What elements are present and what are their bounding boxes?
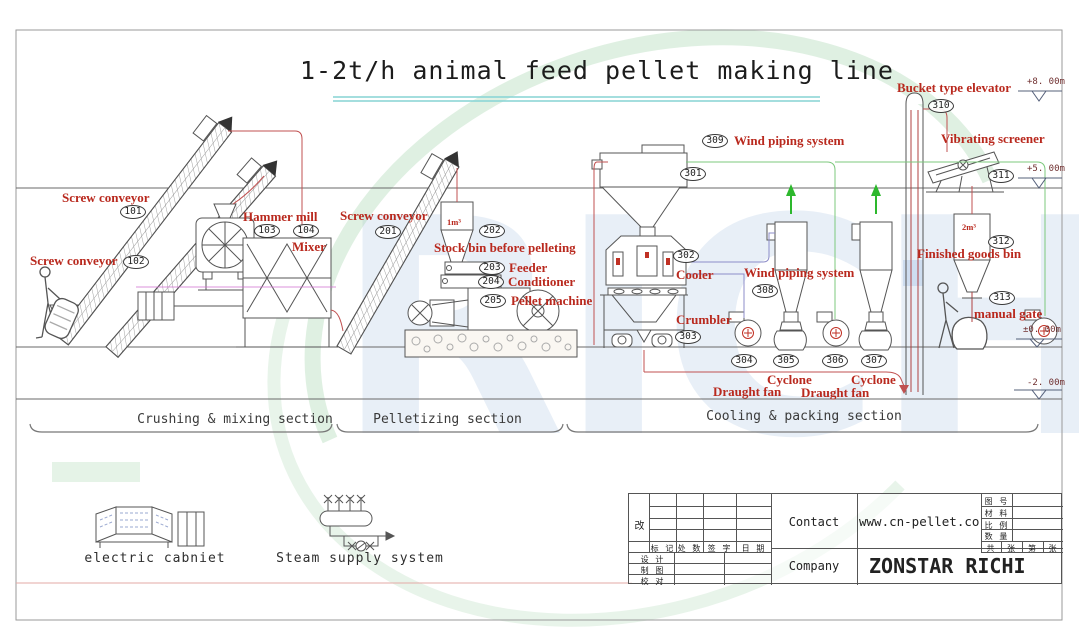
titleblock-company-label: Company	[771, 559, 857, 573]
titleblock-sheet-sheets: 张	[1001, 543, 1022, 554]
badge-309: 309	[702, 134, 728, 148]
titleblock-col-signature: 签 字	[703, 543, 736, 554]
badge-303: 303	[675, 330, 701, 344]
grid-line	[649, 518, 771, 519]
label-wind-piping-309: Wind piping system	[734, 133, 844, 149]
label-manual-gate: manual gate	[974, 306, 1042, 322]
badge-308: 308	[752, 284, 778, 298]
badge-313: 313	[989, 291, 1015, 305]
grid-line	[857, 494, 858, 585]
label-finished-bin-capacity: 2m³	[962, 222, 976, 232]
label-bucket-elevator: Bucket type elevator	[897, 80, 1011, 96]
grid-line	[649, 529, 771, 530]
badge-205: 205	[480, 294, 506, 308]
titleblock-col-date: 日 期	[736, 543, 771, 554]
titleblock-col-mark: 标 记	[649, 543, 676, 554]
section-crushing-mixing: Crushing & mixing section	[120, 412, 350, 427]
titleblock-col-count: 处 数	[676, 543, 703, 554]
badge-302: 302	[673, 249, 699, 263]
titleblock-spec-drawingno: 图 号	[981, 496, 1012, 507]
label-steam-system: Steam supply system	[276, 551, 444, 566]
section-cooling-packing: Cooling & packing section	[690, 409, 918, 424]
titleblock-company-value: ZONSTAR RICHI	[869, 554, 1063, 578]
label-draught-fan-1: Draught fan	[713, 384, 781, 400]
label-draught-fan-2: Draught fan	[801, 385, 869, 401]
label-screw-conveyor-102: Screw conveyor	[30, 253, 117, 269]
label-crumbler: Crumbler	[676, 312, 732, 328]
badge-201: 201	[375, 225, 401, 239]
label-stock-bin: Stock bin before pelleting	[434, 240, 576, 256]
titleblock-spec-scale: 比 例	[981, 520, 1012, 531]
titleblock-row-check: 校 对	[631, 576, 674, 587]
badge-104: 104	[293, 224, 319, 238]
label-hammer-mill: Hammer mill	[243, 209, 318, 225]
titleblock-spec-material: 材 料	[981, 508, 1012, 519]
grid-line	[649, 506, 771, 507]
badge-310: 310	[928, 99, 954, 113]
badge-307: 307	[861, 354, 887, 368]
titleblock-spec-quantity: 数 量	[981, 531, 1012, 542]
titleblock-sheet-no: 第	[1022, 543, 1043, 554]
label-conditioner: Conditioner	[508, 274, 575, 290]
elevation-zero: ±0. 00m	[1023, 325, 1061, 335]
badge-305: 305	[773, 354, 799, 368]
badge-311: 311	[988, 169, 1014, 183]
label-electric-cabinet: electric cabniet	[84, 551, 226, 566]
badge-203: 203	[479, 261, 505, 275]
badge-102: 102	[123, 255, 149, 269]
grid-line	[724, 552, 725, 585]
elevation-minus2: -2. 00m	[1027, 378, 1065, 388]
label-wind-piping-308: Wind piping system	[744, 265, 854, 281]
titleblock-contact-value: www.cn-pellet.com	[859, 514, 979, 529]
label-cooler: Cooler	[676, 267, 714, 283]
titleblock-row-design: 设 计	[631, 554, 674, 565]
title-block: 改 标 记 处 数 签 字 日 期 设 计 制 图 校 对 Contact ww…	[628, 493, 1062, 584]
label-screw-conveyor-101: Screw conveyor	[62, 190, 149, 206]
diagram-canvas: RICHI	[0, 0, 1079, 634]
elevation-plus5: +5. 00m	[1027, 164, 1065, 174]
titleblock-sheet-page: 张	[1043, 543, 1063, 554]
section-pelletizing: Pelletizing section	[350, 412, 545, 427]
grid-line	[674, 552, 675, 585]
label-mixer: Mixer	[292, 239, 326, 255]
badge-301: 301	[680, 167, 706, 181]
titleblock-contact-label: Contact	[771, 515, 857, 529]
elevation-plus8: +8. 00m	[1027, 77, 1065, 87]
label-finished-goods-bin: Finished goods bin	[917, 246, 1021, 262]
label-screw-conveyor-201: Screw conveyor	[340, 208, 427, 224]
badge-202: 202	[479, 224, 505, 238]
titleblock-row-draft: 制 图	[631, 565, 674, 576]
badge-306: 306	[822, 354, 848, 368]
badge-304: 304	[731, 354, 757, 368]
badge-101: 101	[120, 205, 146, 219]
grid-line	[629, 541, 771, 542]
label-pellet-machine: Pellet machine	[511, 293, 592, 309]
label-vibrating-screener: Vibrating screener	[941, 131, 1045, 147]
diagram-title: 1-2t/h animal feed pellet making line	[300, 56, 820, 85]
badge-103: 103	[254, 224, 280, 238]
label-stock-bin-capacity: 1m³	[447, 217, 461, 227]
badge-204: 204	[478, 275, 504, 289]
titleblock-revision: 改	[631, 517, 649, 532]
titleblock-sheet-total: 共	[981, 543, 1001, 554]
